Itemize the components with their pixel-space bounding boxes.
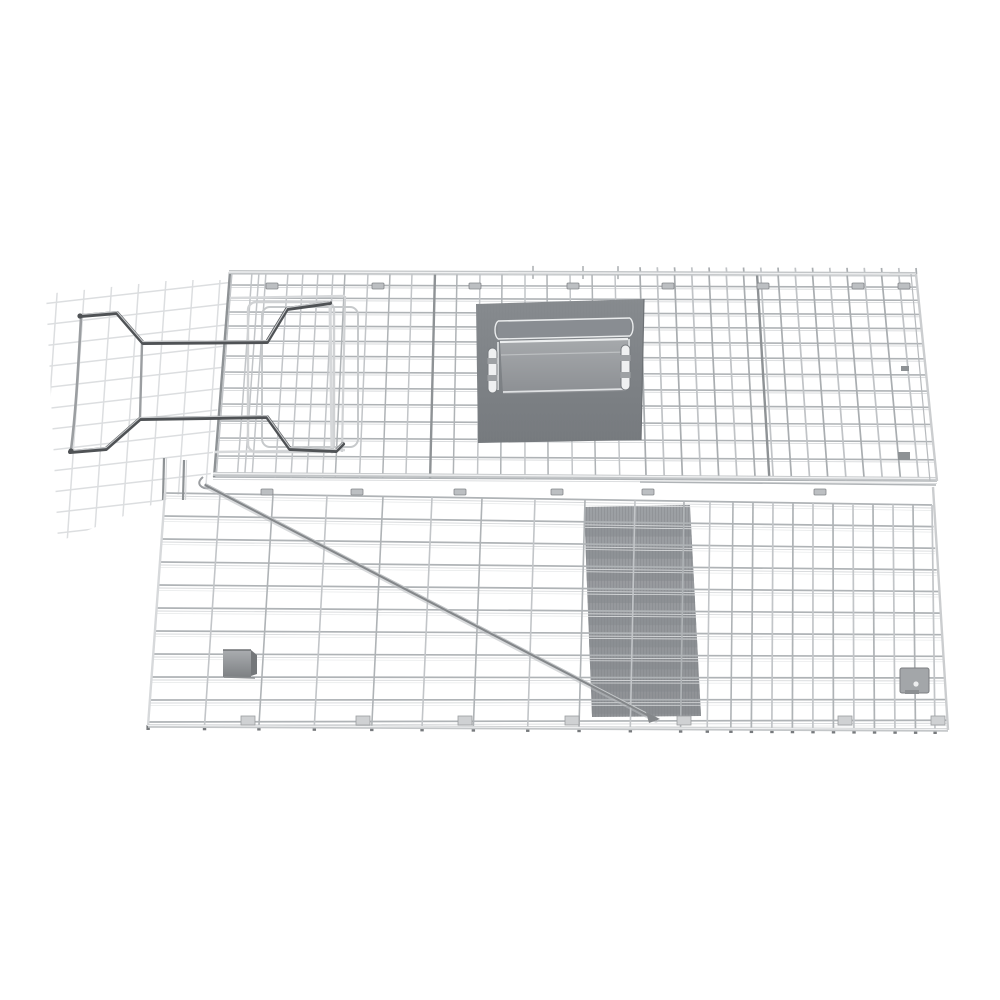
lower-vertical-wire — [751, 502, 753, 730]
lower-horizontal-wire-glint — [157, 614, 940, 619]
lock-wire-end-cap — [77, 313, 82, 318]
trip-plate-bands — [580, 525, 706, 714]
product-photo-stage — [0, 0, 1000, 1000]
lower-horizontal-wire-glint — [162, 545, 936, 554]
handle-slot-bar — [621, 372, 631, 378]
faint-door-panel-mesh — [40, 280, 234, 544]
right-edge-clip — [901, 366, 909, 371]
right-edge-clip — [898, 452, 910, 460]
lower-horizontal-wire-highlight — [153, 657, 943, 659]
handle-slot — [621, 345, 630, 390]
lower-horizontal-wire — [157, 608, 940, 613]
lock-frame-wire — [248, 302, 334, 452]
upper-vertical-stub — [916, 268, 917, 274]
wire-clip — [266, 283, 278, 289]
wire-clip — [642, 489, 654, 495]
faint-vertical-wire — [40, 280, 58, 544]
trap-cage-illustration — [0, 0, 1000, 1000]
lower-vertical-wire — [792, 503, 793, 730]
faint-horizontal-wire — [42, 303, 234, 325]
latch-plate — [900, 668, 929, 693]
latch-plate-hole — [913, 681, 918, 686]
wire-clip — [551, 489, 563, 495]
wire-clip — [898, 283, 910, 289]
corner-foot — [458, 716, 472, 725]
corner-foot — [838, 716, 852, 725]
handle-slot-bar — [488, 358, 498, 364]
latch-plate-lip — [905, 690, 919, 694]
faint-horizontal-wire — [42, 366, 234, 388]
latch-box-shadow — [224, 677, 255, 678]
faint-vertical-wire — [175, 280, 193, 544]
wire-clip — [567, 283, 579, 289]
handle-slot-bar — [488, 375, 498, 381]
lower-corner-post — [183, 460, 184, 500]
lower-horizontal-wire-glint — [165, 499, 932, 511]
lower-vertical-wire — [579, 500, 585, 730]
handle-slot — [488, 348, 497, 393]
wire-clip — [662, 283, 674, 289]
lower-vertical-wire — [731, 502, 733, 730]
lower-vertical-wire — [259, 495, 273, 728]
faint-horizontal-wire — [42, 345, 234, 367]
wire-clip — [454, 489, 466, 495]
wire-clip — [372, 283, 384, 289]
faint-horizontal-wire — [42, 387, 234, 409]
lower-horizontal-wire-glint — [152, 683, 945, 684]
lower-horizontal-wire-highlight — [148, 723, 947, 725]
lower-horizontal-wire-highlight — [165, 496, 932, 508]
trip-plate-band — [580, 657, 706, 669]
corner-foot — [677, 716, 691, 725]
lower-vertical-wire — [893, 504, 895, 730]
wire-clip — [261, 489, 273, 495]
lower-horizontal-wire-highlight — [152, 680, 945, 681]
wire-clip — [757, 283, 769, 289]
lower-vertical-wire — [707, 502, 710, 730]
lower-vertical-wire — [772, 503, 773, 731]
lower-left-edge — [148, 493, 165, 726]
corner-foot — [356, 716, 370, 725]
handle-fold-strip — [500, 339, 628, 394]
trip-plate-band — [580, 613, 706, 625]
lower-mesh-panel — [146, 458, 948, 734]
corner-foot — [241, 716, 255, 725]
wire-clip — [351, 489, 363, 495]
lower-horizontal-wire — [152, 677, 945, 678]
lower-vertical-wire — [853, 504, 854, 731]
lock-wire-end-cap — [68, 448, 73, 453]
wire-clip — [469, 283, 481, 289]
corner-foot — [931, 716, 945, 725]
lock-right-wire — [330, 303, 332, 452]
lower-horizontal-wire — [153, 654, 943, 656]
wire-clip — [852, 283, 864, 289]
faint-vertical-wire — [94, 280, 112, 544]
lower-horizontal-wire — [158, 585, 938, 591]
lower-horizontal-wire — [148, 720, 947, 722]
lower-vertical-wire — [932, 505, 935, 731]
lower-vertical-wire — [204, 494, 220, 727]
product-photo — [0, 0, 1000, 1000]
lower-vertical-wire — [913, 505, 916, 731]
carry-handle-plate — [476, 299, 644, 443]
handle-slot-bar — [621, 355, 631, 361]
corner-foot — [565, 716, 579, 725]
trip-plate-band — [580, 635, 706, 647]
wire-clip — [814, 489, 826, 495]
lower-vertical-wire — [873, 504, 874, 731]
latch-box — [223, 650, 251, 677]
